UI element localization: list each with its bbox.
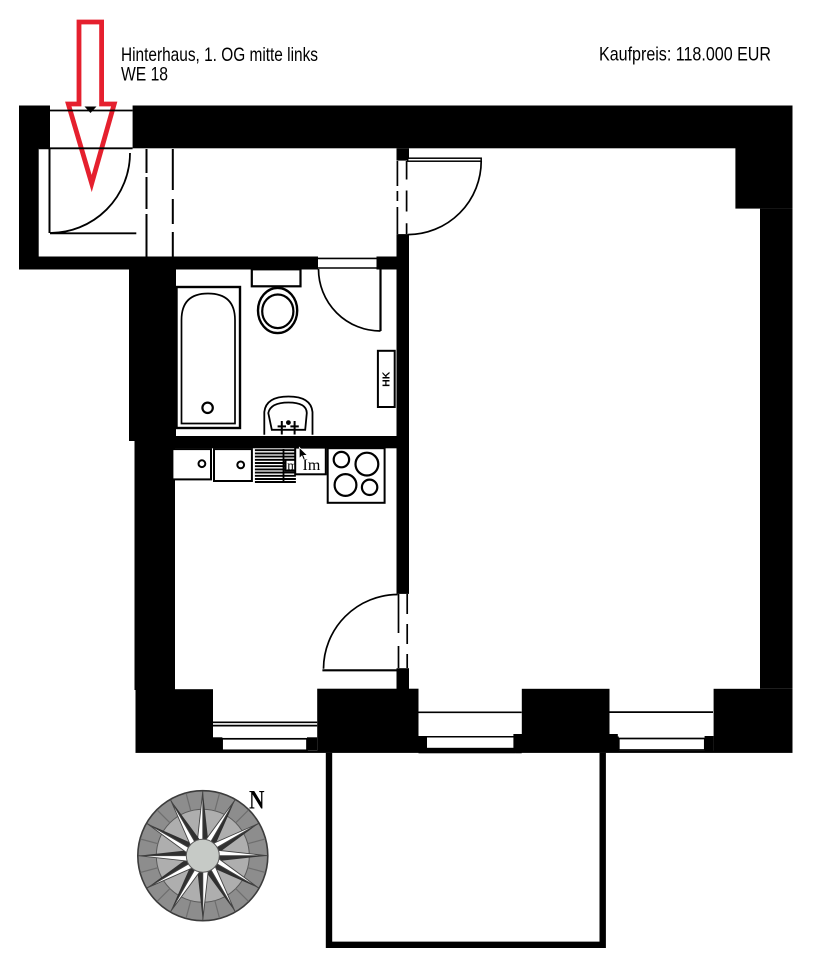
svg-text:N: N [249,784,265,814]
svg-text:HK: HK [380,371,392,387]
svg-text:WE 18: WE 18 [121,64,168,86]
svg-text:Kaufpreis: 118.000 EUR: Kaufpreis: 118.000 EUR [599,44,771,66]
svg-text:Im: Im [303,457,321,474]
